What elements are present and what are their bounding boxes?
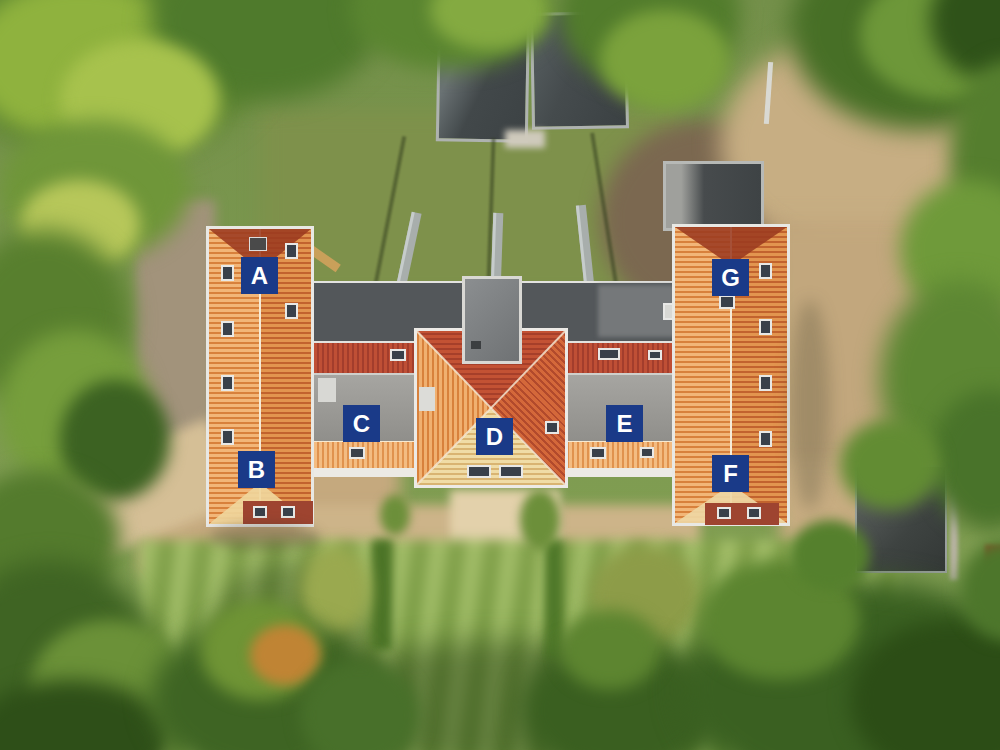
aerial-photo: A B C D E F G <box>0 0 1000 750</box>
skylight <box>285 303 298 319</box>
skylight <box>759 431 772 447</box>
south-gable-wall <box>243 501 313 524</box>
unit-marker-f[interactable]: F <box>712 455 749 492</box>
roof-vent <box>419 387 435 411</box>
hedge-row <box>372 540 392 650</box>
unit-marker-b-label: B <box>248 458 265 482</box>
south-gable-wall <box>705 503 779 525</box>
neighbor-garage-roof <box>663 161 764 231</box>
skylight <box>759 375 772 391</box>
unit-marker-g-label: G <box>721 266 740 290</box>
unit-marker-c-label: C <box>353 412 370 436</box>
skylight <box>285 243 298 259</box>
unit-marker-e[interactable]: E <box>606 405 643 442</box>
unit-marker-f-label: F <box>723 462 738 486</box>
tree-canopy <box>560 610 660 690</box>
window <box>253 506 267 518</box>
roof-vent <box>318 378 336 402</box>
skylight <box>221 375 234 391</box>
unit-marker-d[interactable]: D <box>476 418 513 455</box>
skylight <box>349 447 365 459</box>
unit-marker-e-label: E <box>616 412 632 436</box>
unit-marker-a-label: A <box>251 264 268 288</box>
autumn-tree <box>250 625 320 685</box>
window <box>467 465 491 478</box>
skylight <box>598 348 620 360</box>
window <box>717 507 731 519</box>
tree-canopy <box>840 420 940 510</box>
bush <box>520 490 560 550</box>
tree-canopy <box>790 520 870 590</box>
tree-canopy <box>600 10 730 110</box>
building-shadow <box>790 300 830 510</box>
unit-marker-a[interactable]: A <box>241 257 278 294</box>
chimney <box>249 237 267 251</box>
unit-marker-d-label: D <box>486 425 503 449</box>
window <box>499 465 523 478</box>
skylight <box>590 447 606 459</box>
rooftop-tower <box>462 276 522 364</box>
building-shadow <box>210 523 320 551</box>
skylight <box>759 319 772 335</box>
skylight <box>640 447 654 458</box>
unit-marker-c[interactable]: C <box>343 405 380 442</box>
shrub-cluster <box>300 545 370 635</box>
bush <box>380 495 410 535</box>
skylight <box>221 321 234 337</box>
skylight <box>545 421 559 434</box>
skylight <box>648 350 662 360</box>
window <box>281 506 295 518</box>
concrete-pad <box>505 130 545 148</box>
skylight <box>221 429 234 445</box>
skylight <box>759 263 772 279</box>
window <box>747 507 761 519</box>
skylight <box>390 349 406 361</box>
unit-marker-b[interactable]: B <box>238 451 275 488</box>
tower-hatch <box>471 341 481 349</box>
skylight <box>719 295 735 309</box>
unit-marker-g[interactable]: G <box>712 259 749 296</box>
skylight <box>221 265 234 281</box>
